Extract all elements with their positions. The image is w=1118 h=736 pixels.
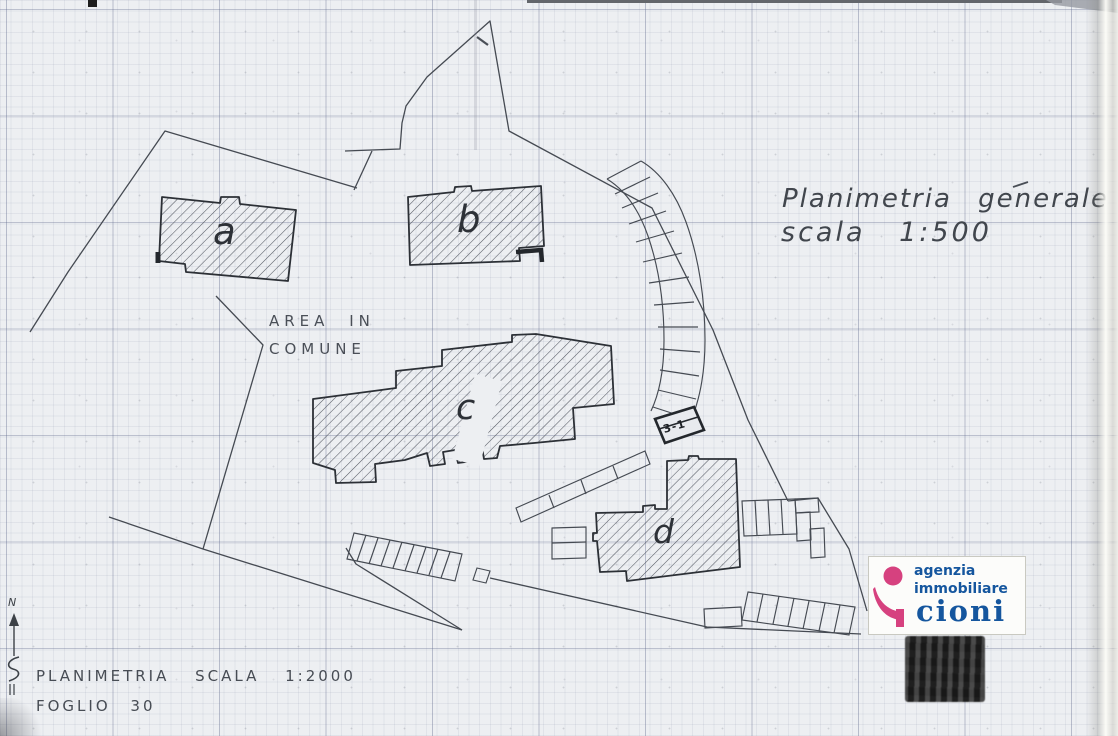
site-boundary: [30, 21, 867, 634]
parking-band-lower-left: [347, 533, 490, 583]
building-b-label: b: [457, 198, 481, 241]
scan-edge-artifacts: [88, 0, 1118, 13]
redaction-scribble: [905, 636, 985, 702]
north-arrow: [9, 613, 19, 695]
plan-scale: scala 1:500: [781, 217, 992, 248]
stray-marks: [477, 37, 1028, 187]
building-a-label: a: [213, 210, 236, 253]
agency-logo-icon: [873, 563, 913, 629]
agency-logo-card: agenzia immobiliare cioni: [868, 556, 1026, 635]
parking-row-bottom-right: [704, 592, 855, 635]
logo-brand: cioni: [916, 594, 1006, 628]
building-c-label: c: [456, 388, 475, 428]
fold-crease: [474, 0, 477, 150]
curved-parking-band: [607, 161, 705, 427]
footer-sheet-note: FOGLIO 30: [36, 697, 156, 715]
area-note-line1: AREA IN: [269, 312, 375, 330]
area-note-line2: COMUNE: [269, 340, 366, 358]
site-plan-document: Planimetria generale scala 1:500 AREA IN…: [0, 0, 1118, 736]
footer-scale-note: PLANIMETRIA SCALA 1:2000: [36, 667, 356, 685]
paper-edge-crease: [1086, 0, 1118, 736]
building-d-label: d: [653, 512, 674, 551]
logo-line1: agenzia: [914, 563, 975, 579]
plan-title: Planimetria generale: [782, 184, 1109, 214]
parking-cluster-right: [742, 498, 825, 558]
parcel-3-1-label: 3-1: [662, 417, 688, 436]
north-label: N: [8, 596, 16, 609]
ladder-strip-middle: [516, 451, 650, 559]
